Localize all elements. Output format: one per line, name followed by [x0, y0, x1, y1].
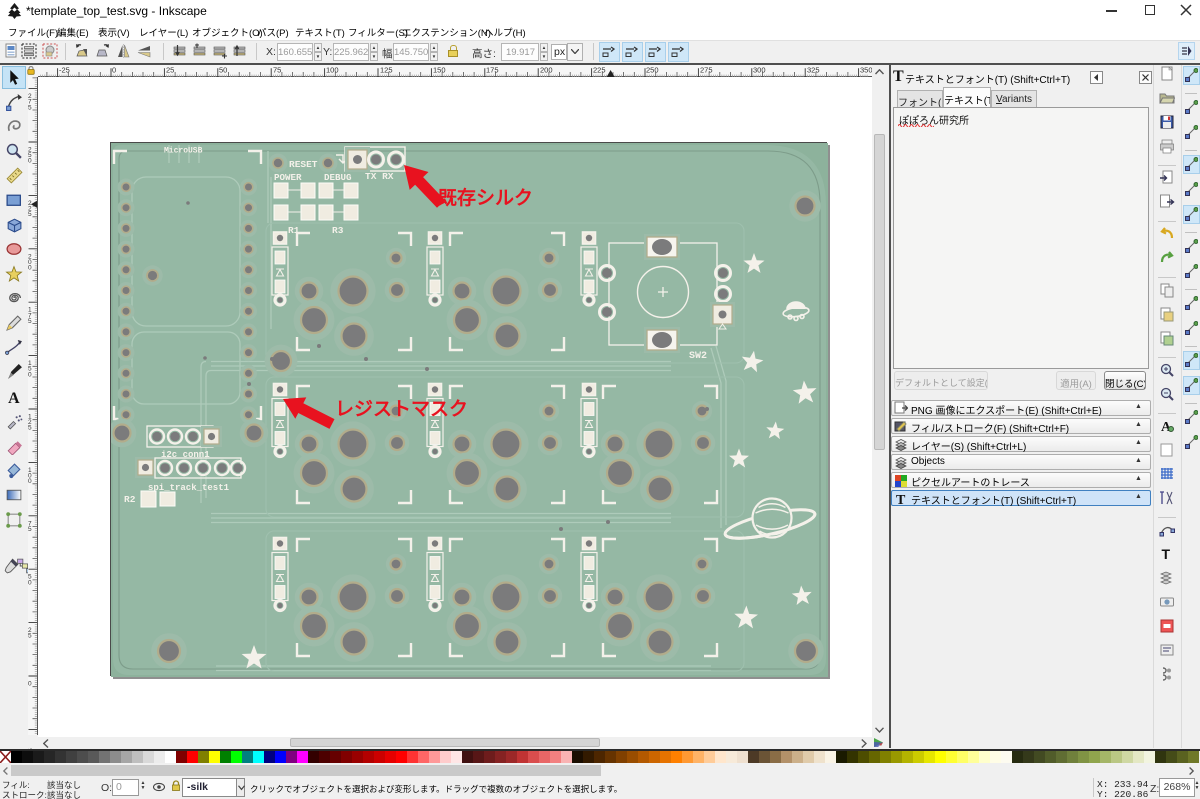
svg-text:350: 350 — [860, 66, 873, 75]
svg-text:RESET: RESET — [289, 159, 318, 170]
svg-text:50: 50 — [219, 66, 227, 75]
svg-text:75: 75 — [273, 66, 281, 75]
svg-text:300: 300 — [753, 66, 766, 75]
svg-text:200: 200 — [540, 66, 553, 75]
svg-text:0: 0 — [28, 579, 32, 586]
svg-text:MicroUSB: MicroUSB — [164, 147, 203, 156]
svg-text:125: 125 — [380, 66, 393, 75]
svg-text:レジストマスク: レジストマスク — [335, 398, 468, 420]
svg-text:0: 0 — [28, 478, 32, 485]
svg-text:325: 325 — [807, 66, 820, 75]
svg-text:R3: R3 — [332, 225, 344, 236]
svg-text:5: 5 — [28, 318, 32, 325]
svg-text:R2: R2 — [124, 494, 136, 505]
svg-text:5: 5 — [28, 633, 32, 640]
svg-text:0: 0 — [28, 158, 32, 165]
svg-text:150: 150 — [433, 66, 446, 75]
svg-text:POWER: POWER — [274, 172, 302, 183]
svg-text:5: 5 — [28, 211, 32, 218]
svg-text:5: 5 — [28, 425, 32, 432]
svg-text:175: 175 — [486, 66, 499, 75]
svg-text:5: 5 — [28, 104, 32, 111]
svg-text:T: T — [1162, 546, 1171, 562]
svg-text:T: T — [896, 493, 906, 505]
svg-text:250: 250 — [646, 66, 659, 75]
svg-text:0: 0 — [112, 66, 116, 75]
svg-text:225: 225 — [593, 66, 606, 75]
svg-text:既存シルク: 既存シルク — [438, 186, 533, 209]
svg-text:TX RX: TX RX — [365, 171, 394, 182]
svg-text:DEBUG: DEBUG — [324, 172, 352, 183]
svg-text:275: 275 — [700, 66, 713, 75]
svg-text:0: 0 — [28, 371, 32, 378]
svg-text:SW2: SW2 — [689, 351, 707, 362]
svg-text:25: 25 — [166, 66, 174, 75]
svg-text:5: 5 — [28, 526, 32, 533]
svg-text:0: 0 — [28, 681, 32, 688]
svg-text:-25: -25 — [59, 66, 70, 75]
svg-text:100: 100 — [326, 66, 339, 75]
svg-text:0: 0 — [28, 265, 32, 272]
